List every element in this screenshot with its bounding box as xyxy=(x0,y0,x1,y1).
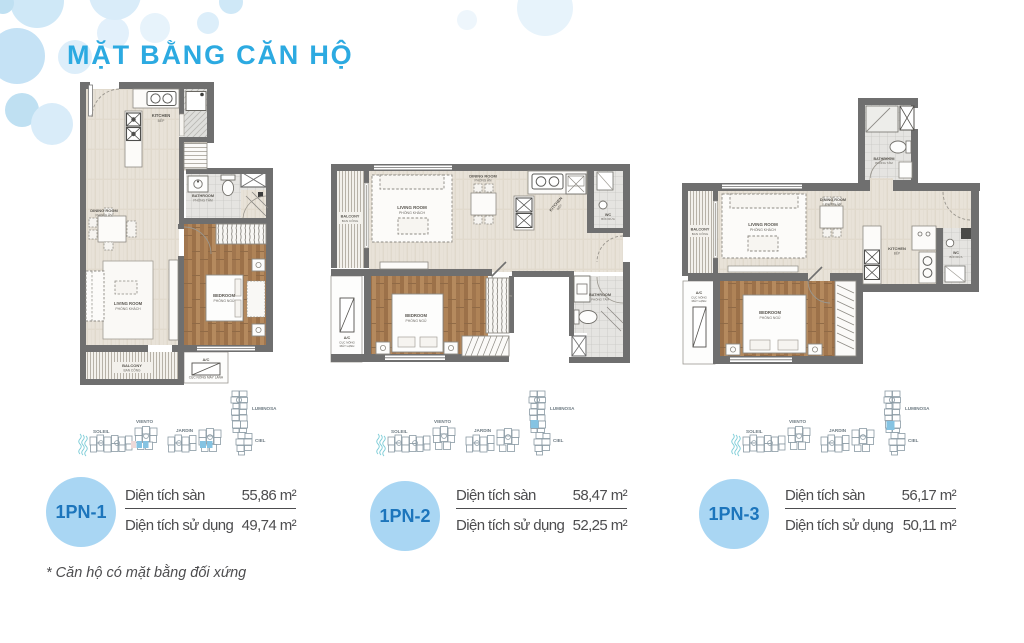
svg-text:BEDROOM: BEDROOM xyxy=(759,310,781,315)
svg-text:LIVING ROOM: LIVING ROOM xyxy=(114,301,143,306)
svg-text:BATHROOM: BATHROOM xyxy=(192,194,214,198)
svg-text:BỒN RỬA: BỒN RỬA xyxy=(949,254,962,259)
svg-text:BALCONY: BALCONY xyxy=(341,215,360,219)
svg-text:LIVING ROOM: LIVING ROOM xyxy=(748,222,778,227)
svg-text:PHÒNG ĂN: PHÒNG ĂN xyxy=(474,178,492,183)
svg-text:MÁY LẠNH: MÁY LẠNH xyxy=(692,299,707,303)
svg-text:LIVING ROOM: LIVING ROOM xyxy=(397,205,427,210)
svg-text:BẾP: BẾP xyxy=(894,251,900,256)
svg-text:PHÒNG TẮM: PHÒNG TẮM xyxy=(193,198,213,203)
svg-text:BALCONY: BALCONY xyxy=(122,363,142,368)
svg-text:PHÒNG KHÁCH: PHÒNG KHÁCH xyxy=(115,306,141,311)
svg-text:BẾP: BẾP xyxy=(158,118,166,123)
svg-text:A/C: A/C xyxy=(344,336,351,340)
svg-text:PHÒNG NGỦ: PHÒNG NGỦ xyxy=(214,298,235,303)
svg-text:PHÒNG ĂN: PHÒNG ĂN xyxy=(825,201,841,206)
svg-text:BAN CÔNG: BAN CÔNG xyxy=(342,218,359,223)
svg-text:PHÒNG TẮM: PHÒNG TẮM xyxy=(591,297,610,302)
svg-text:CỤC NÓNG MÁY LẠNH: CỤC NÓNG MÁY LẠNH xyxy=(189,375,224,380)
svg-text:KITCHEN: KITCHEN xyxy=(152,113,171,118)
svg-text:DINING ROOM: DINING ROOM xyxy=(90,208,118,213)
svg-text:PHÒNG TẮM: PHÒNG TẮM xyxy=(875,160,893,165)
svg-text:PHÒNG NGỦ: PHÒNG NGỦ xyxy=(760,315,781,320)
svg-text:A/C: A/C xyxy=(203,357,210,362)
svg-text:KITCHEN: KITCHEN xyxy=(888,246,906,251)
svg-text:PHÒNG KHÁCH: PHÒNG KHÁCH xyxy=(750,227,777,232)
svg-text:PHÒNG ĂN: PHÒNG ĂN xyxy=(95,213,113,218)
svg-text:BATHROOM: BATHROOM xyxy=(589,293,611,297)
svg-text:PHÒNG KHÁCH: PHÒNG KHÁCH xyxy=(399,210,426,215)
svg-text:BEDROOM: BEDROOM xyxy=(405,313,427,318)
svg-text:A/C: A/C xyxy=(696,291,703,295)
svg-text:BEDROOM: BEDROOM xyxy=(213,293,235,298)
svg-text:BAN CÔNG: BAN CÔNG xyxy=(123,368,141,373)
svg-text:BỒN RỬA: BỒN RỬA xyxy=(601,216,615,221)
svg-text:BALCONY: BALCONY xyxy=(691,228,710,232)
svg-text:PHÒNG NGỦ: PHÒNG NGỦ xyxy=(406,318,427,323)
svg-text:MÁY LẠNH: MÁY LẠNH xyxy=(340,344,355,348)
svg-text:BAN CÔNG: BAN CÔNG xyxy=(692,231,709,236)
